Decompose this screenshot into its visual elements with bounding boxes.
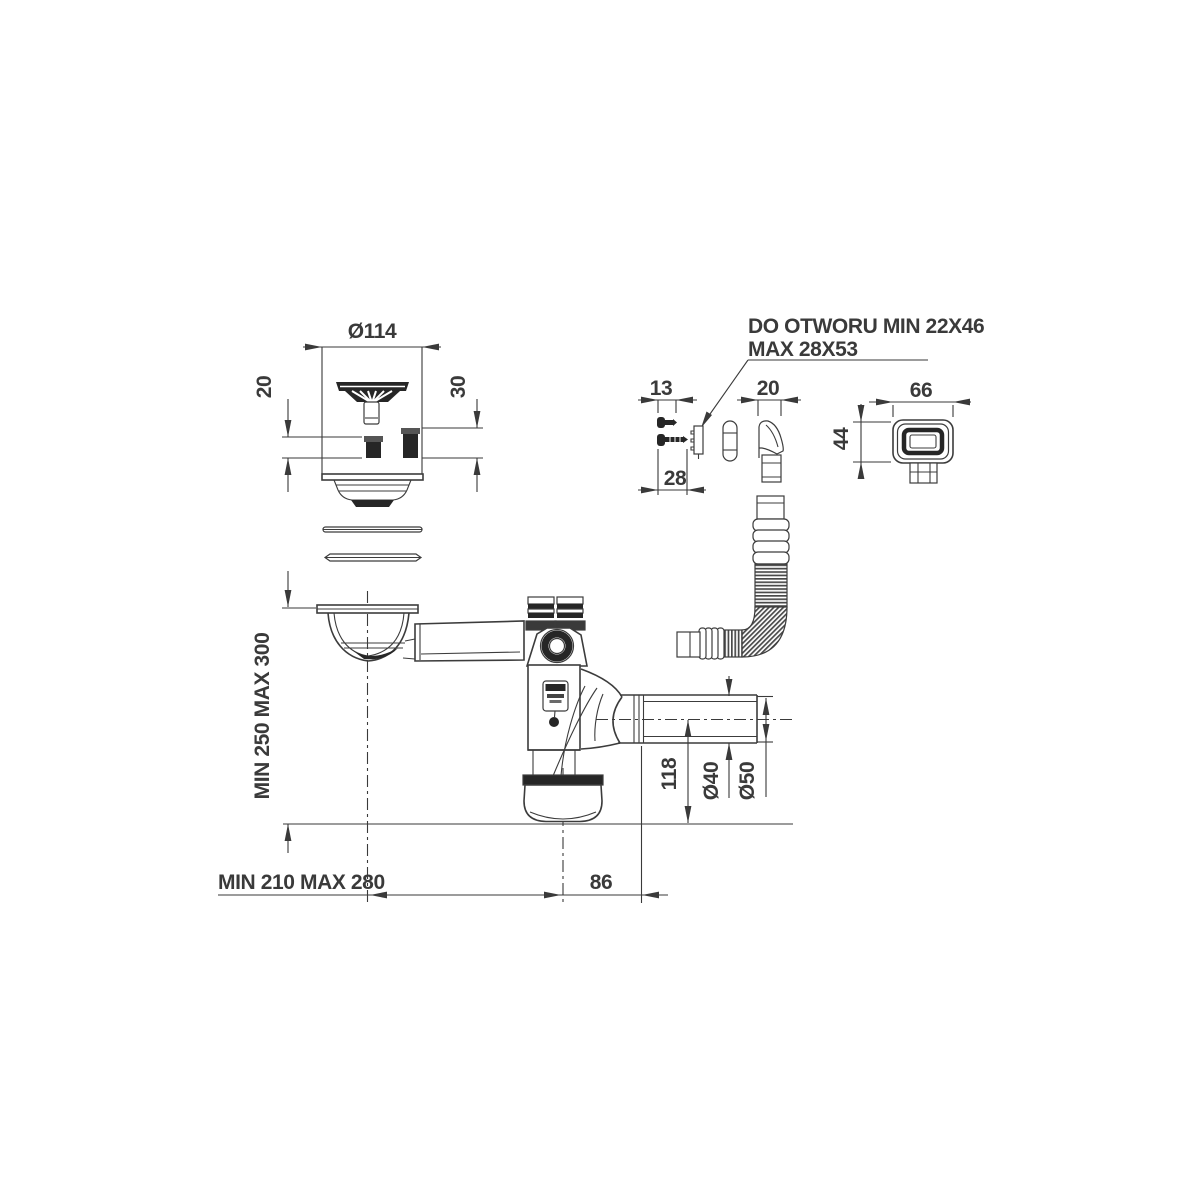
- hose-end-connector: [677, 632, 700, 657]
- mounting-screws: [657, 417, 688, 446]
- overflow-gasket: [723, 421, 737, 461]
- strainer-stem: [364, 402, 379, 424]
- siphon-head: [527, 628, 587, 666]
- siphon-body: [528, 665, 603, 776]
- siphon-hose-connectors: [526, 597, 585, 630]
- trap-cup: [523, 775, 603, 822]
- hose-connector-right: [555, 597, 585, 630]
- dim-overflow-cover-width: 66: [869, 379, 971, 417]
- dim-overflow-connector: 20: [737, 377, 801, 416]
- dim-label-cover-height: 44: [830, 427, 853, 450]
- dim-label-trap-to-joint: 86: [590, 871, 613, 894]
- hose-bend: [742, 607, 787, 657]
- dim-horizontal-range: MIN 210 MAX 280 86: [218, 871, 668, 898]
- strainer-basket: [336, 382, 409, 424]
- inlet-pipe: [415, 621, 524, 661]
- dim-label-axis-to-bottom: 118: [658, 757, 681, 790]
- main-dimensions: MIN 250 MAX 300 MIN 210 MAX 280 86 118 Ø…: [218, 571, 773, 898]
- hose-ribbed-end: [699, 628, 724, 659]
- overflow-elbow: [759, 421, 783, 482]
- dim-plug-large: 30: [422, 376, 483, 492]
- dim-label-strainer-diameter: Ø114: [348, 320, 397, 343]
- dim-label-outlet-outer: Ø50: [736, 762, 759, 801]
- overflow-parts-group: DO OTWORU MIN 22X46 MAX 28X53 13: [638, 315, 984, 495]
- hose-ribbed-top: [753, 519, 789, 564]
- cleanout-dot: [549, 717, 559, 727]
- hose-corrugation-vertical: [755, 564, 787, 607]
- dim-label-overflow-connector: 20: [757, 377, 780, 400]
- note-line2: MAX 28X53: [748, 338, 858, 361]
- sink-plug-small: [364, 436, 383, 458]
- sink-plug-large: [401, 428, 420, 458]
- dim-label-plug-small: 20: [253, 376, 276, 399]
- bevel-gasket: [325, 554, 421, 561]
- dim-screw-long: 28: [638, 449, 706, 495]
- overflow-cover-stub: [910, 463, 937, 483]
- dim-axis-to-bottom: 118: [658, 720, 691, 823]
- hose-corrugation-horizontal: [724, 630, 742, 657]
- opening-note: DO OTWORU MIN 22X46 MAX 28X53: [701, 315, 984, 428]
- dim-vertical-range: MIN 250 MAX 300: [251, 571, 316, 853]
- note-line1: DO OTWORU MIN 22X46: [748, 315, 984, 338]
- dim-label-cover-width: 66: [910, 379, 933, 402]
- dim-overflow-cover-height: 44: [830, 404, 891, 479]
- dim-label-screw-long: 28: [664, 467, 687, 490]
- brand-label: [543, 681, 568, 717]
- dim-screw-short: 13: [638, 377, 697, 413]
- dim-label-horizontal-range: MIN 210 MAX 280: [218, 871, 385, 894]
- exploded-strainer-group: Ø114 20: [253, 320, 483, 561]
- dim-label-outlet-inner: Ø40: [700, 762, 723, 801]
- hose-connector-left: [526, 597, 556, 630]
- flex-hose: [677, 496, 789, 659]
- overflow-cover: [893, 420, 953, 483]
- dim-label-plug-large: 30: [447, 376, 470, 399]
- hose-top-connector: [757, 496, 784, 519]
- dim-outlet-outer-diameter: Ø50: [736, 697, 773, 801]
- clamp-bracket: [691, 426, 703, 459]
- dim-label-vertical-range: MIN 250 MAX 300: [251, 633, 274, 800]
- sink-siphon-drawing: Ø114 20: [0, 0, 1200, 1200]
- flat-gasket: [323, 527, 422, 532]
- technical-drawing-canvas: Ø114 20: [0, 0, 1200, 1200]
- drain-upper-body: [322, 474, 423, 507]
- dim-label-screw-short: 13: [650, 377, 673, 400]
